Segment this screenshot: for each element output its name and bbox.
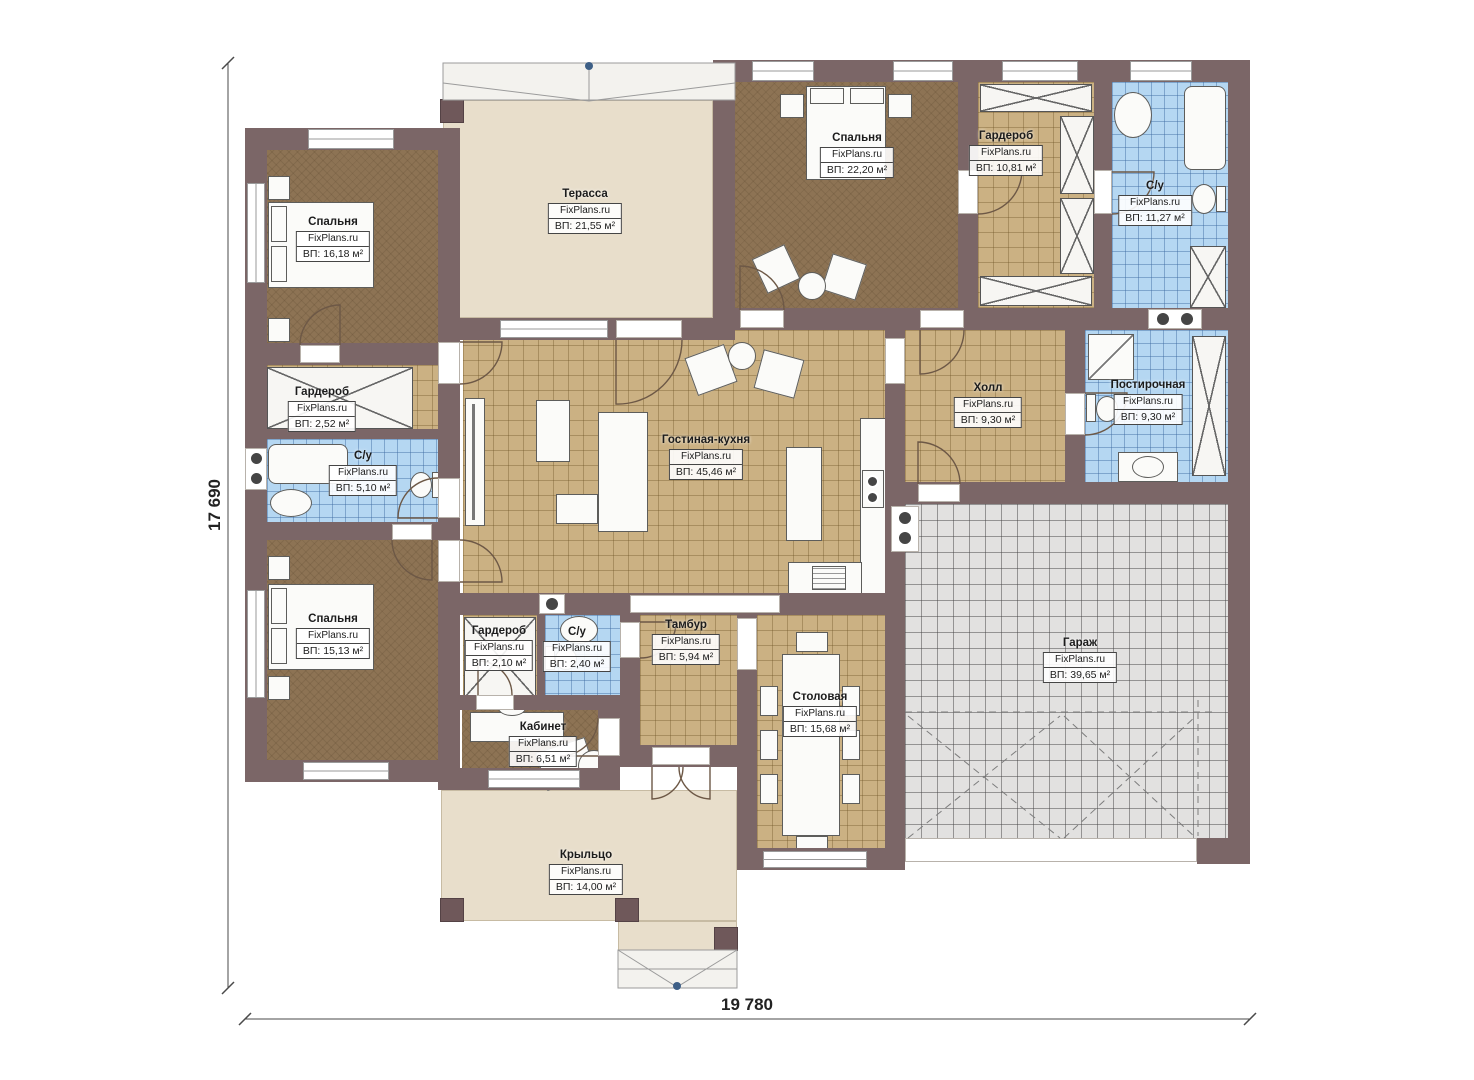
watermark: FixPlans.ru bbox=[550, 865, 622, 880]
pillow bbox=[810, 88, 844, 104]
chair bbox=[760, 686, 778, 716]
room-info-box: FixPlans.ru ВП: 21,55 м² bbox=[548, 203, 622, 234]
door-opening bbox=[392, 524, 432, 540]
room-info-box: FixPlans.ru ВП: 2,40 м² bbox=[543, 641, 611, 672]
door-opening bbox=[920, 310, 964, 328]
room-info-box: FixPlans.ru ВП: 5,10 м² bbox=[329, 465, 397, 496]
room-area: ВП: 15,68 м² bbox=[784, 722, 856, 736]
room-name: Гардероб bbox=[969, 130, 1043, 143]
wall bbox=[885, 504, 905, 870]
kitchen-island bbox=[786, 447, 822, 541]
door-opening bbox=[737, 618, 757, 670]
room-area: ВП: 5,94 м² bbox=[653, 650, 719, 664]
window bbox=[247, 183, 265, 283]
toilet bbox=[410, 472, 432, 498]
chair bbox=[760, 774, 778, 804]
room-label-hall: Холл FixPlans.ru ВП: 9,30 м² bbox=[954, 382, 1022, 428]
room-label-bathroom-2: С/у FixPlans.ru ВП: 5,10 м² bbox=[329, 450, 397, 496]
room-label-living-kitchen: Гостиная-кухня FixPlans.ru ВП: 45,46 м² bbox=[662, 434, 750, 480]
terrace-roof-outline bbox=[443, 62, 735, 101]
room-name: Крыльцо bbox=[549, 849, 623, 862]
window bbox=[500, 320, 608, 338]
room-area: ВП: 39,65 м² bbox=[1044, 668, 1116, 682]
room-area: ВП: 2,52 м² bbox=[289, 417, 355, 431]
watermark: FixPlans.ru bbox=[1119, 196, 1191, 211]
room-name: С/у bbox=[1118, 180, 1192, 193]
room-label-laundry: Постирочная FixPlans.ru ВП: 9,30 м² bbox=[1111, 379, 1186, 425]
door-opening bbox=[958, 170, 978, 214]
shower bbox=[1088, 334, 1134, 380]
room-label-bedroom-2: Спальня FixPlans.ru ВП: 22,20 м² bbox=[820, 132, 894, 178]
door-opening bbox=[885, 338, 905, 384]
room-name: Кабинет bbox=[509, 721, 577, 734]
sink bbox=[1114, 92, 1152, 138]
room-name: Гараж bbox=[1043, 637, 1117, 650]
room-label-bedroom-1: Спальня FixPlans.ru ВП: 16,18 м² bbox=[296, 216, 370, 262]
room-area: ВП: 5,10 м² bbox=[330, 481, 396, 495]
watermark: FixPlans.ru bbox=[297, 232, 369, 247]
room-info-box: FixPlans.ru ВП: 5,94 м² bbox=[652, 634, 720, 665]
wardrobe-cabinet bbox=[1190, 246, 1226, 308]
room-info-box: FixPlans.ru ВП: 10,81 м² bbox=[969, 145, 1043, 176]
dimension-height-label: 17 690 bbox=[205, 479, 225, 531]
watermark: FixPlans.ru bbox=[297, 629, 369, 644]
dimension-width-label: 19 780 bbox=[721, 995, 773, 1015]
room-area: ВП: 9,30 м² bbox=[1115, 410, 1181, 424]
watermark: FixPlans.ru bbox=[466, 641, 532, 656]
nightstand bbox=[268, 318, 290, 342]
chair bbox=[842, 774, 860, 804]
floor-plan: Спальня FixPlans.ru ВП: 16,18 м² Терасса… bbox=[0, 0, 1474, 1080]
wall bbox=[245, 343, 460, 365]
room-name: Столовая bbox=[783, 691, 857, 704]
watermark: FixPlans.ru bbox=[544, 642, 610, 657]
door-opening bbox=[1094, 170, 1112, 214]
room-name: С/у bbox=[543, 626, 611, 639]
room-area: ВП: 45,46 м² bbox=[670, 465, 742, 479]
coffee-table bbox=[536, 400, 570, 462]
round-table bbox=[728, 342, 756, 370]
room-label-bathroom-1: С/у FixPlans.ru ВП: 11,27 м² bbox=[1118, 180, 1192, 226]
watermark: FixPlans.ru bbox=[549, 204, 621, 219]
room-area: ВП: 9,30 м² bbox=[955, 413, 1021, 427]
boiler-dial bbox=[249, 471, 264, 486]
side-table bbox=[556, 494, 598, 524]
column bbox=[441, 899, 463, 921]
garage-gate-opening bbox=[905, 838, 1197, 862]
kitchen-sink bbox=[812, 566, 846, 590]
door-opening bbox=[740, 310, 784, 328]
column bbox=[715, 928, 737, 950]
room-name: С/у bbox=[329, 450, 397, 463]
wall bbox=[620, 593, 640, 767]
bathtub bbox=[1184, 86, 1226, 170]
roof-apex-marker bbox=[585, 62, 593, 70]
watermark: FixPlans.ru bbox=[1115, 395, 1181, 410]
room-info-box: FixPlans.ru ВП: 39,65 м² bbox=[1043, 652, 1117, 683]
watermark: FixPlans.ru bbox=[670, 450, 742, 465]
room-info-box: FixPlans.ru ВП: 16,18 м² bbox=[296, 231, 370, 262]
door-opening bbox=[918, 484, 960, 502]
room-label-bedroom-3: Спальня FixPlans.ru ВП: 15,13 м² bbox=[296, 613, 370, 659]
room-area: ВП: 11,27 м² bbox=[1119, 211, 1191, 225]
wardrobe-cabinet bbox=[980, 84, 1092, 112]
porch-steps bbox=[618, 950, 737, 990]
room-label-bathroom-3: С/у FixPlans.ru ВП: 2,40 м² bbox=[543, 626, 611, 672]
room-area: ВП: 22,20 м² bbox=[821, 163, 893, 177]
room-name: Терасса bbox=[548, 188, 622, 201]
room-name: Холл bbox=[954, 382, 1022, 395]
column bbox=[441, 100, 463, 122]
nightstand bbox=[780, 94, 804, 118]
watermark: FixPlans.ru bbox=[289, 402, 355, 417]
room-label-garage: Гараж FixPlans.ru ВП: 39,65 м² bbox=[1043, 637, 1117, 683]
room-label-study: Кабинет FixPlans.ru ВП: 6,51 м² bbox=[509, 721, 577, 767]
room-area: ВП: 2,10 м² bbox=[466, 656, 532, 670]
vent bbox=[544, 596, 560, 612]
window bbox=[763, 851, 867, 868]
steps-marker bbox=[673, 982, 681, 990]
window bbox=[893, 61, 953, 81]
chair bbox=[796, 632, 828, 652]
toilet bbox=[1192, 184, 1216, 214]
nightstand bbox=[268, 676, 290, 700]
room-name: Спальня bbox=[296, 613, 370, 626]
door-opening bbox=[438, 478, 460, 518]
room-name: Спальня bbox=[820, 132, 894, 145]
nightstand bbox=[268, 176, 290, 200]
tv bbox=[472, 404, 475, 520]
pillow bbox=[271, 206, 287, 242]
room-name: Спальня bbox=[296, 216, 370, 229]
door-opening bbox=[1065, 393, 1085, 435]
chair bbox=[760, 730, 778, 760]
pass-through-opening bbox=[630, 595, 780, 613]
room-area: ВП: 6,51 м² bbox=[510, 752, 576, 766]
room-area: ВП: 14,00 м² bbox=[550, 880, 622, 894]
window bbox=[1130, 61, 1192, 81]
room-info-box: FixPlans.ru ВП: 15,68 м² bbox=[783, 706, 857, 737]
room-info-box: FixPlans.ru ВП: 45,46 м² bbox=[669, 449, 743, 480]
burner bbox=[866, 491, 879, 504]
wall bbox=[1228, 60, 1250, 864]
room-info-box: FixPlans.ru ВП: 22,20 м² bbox=[820, 147, 894, 178]
watermark: FixPlans.ru bbox=[653, 635, 719, 650]
door-opening bbox=[598, 718, 620, 756]
sofa bbox=[598, 412, 648, 532]
burner bbox=[897, 530, 913, 546]
watermark: FixPlans.ru bbox=[821, 148, 893, 163]
wall bbox=[713, 60, 735, 330]
room-name: Гардероб bbox=[288, 386, 356, 399]
burner bbox=[866, 475, 879, 488]
watermark: FixPlans.ru bbox=[330, 466, 396, 481]
toilet-tank bbox=[1086, 394, 1096, 422]
pillow bbox=[271, 588, 287, 624]
room-info-box: FixPlans.ru ВП: 2,52 м² bbox=[288, 401, 356, 432]
boiler-dial bbox=[249, 451, 264, 466]
room-name: Постирочная bbox=[1111, 379, 1186, 392]
room-area: ВП: 2,40 м² bbox=[544, 657, 610, 671]
dryer bbox=[1179, 311, 1195, 327]
entrance-door-opening bbox=[652, 747, 710, 765]
wardrobe-cabinet bbox=[1060, 198, 1094, 274]
room-label-terrace: Терасса FixPlans.ru ВП: 21,55 м² bbox=[548, 188, 622, 234]
room-label-wardrobe-1: Гардероб FixPlans.ru ВП: 10,81 м² bbox=[969, 130, 1043, 176]
coffee-table bbox=[798, 272, 826, 300]
room-name: Гостиная-кухня bbox=[662, 434, 750, 447]
watermark: FixPlans.ru bbox=[1044, 653, 1116, 668]
watermark: FixPlans.ru bbox=[955, 398, 1021, 413]
sink bbox=[1132, 456, 1164, 478]
storage-cabinet bbox=[1192, 336, 1226, 476]
door-opening bbox=[300, 345, 340, 363]
door-opening bbox=[476, 695, 514, 710]
room-area: ВП: 10,81 м² bbox=[970, 161, 1042, 175]
wardrobe-cabinet bbox=[1060, 116, 1094, 194]
toilet-tank bbox=[1216, 186, 1226, 212]
pillow bbox=[850, 88, 884, 104]
door-opening bbox=[438, 342, 460, 384]
room-area: ВП: 16,18 м² bbox=[297, 247, 369, 261]
window bbox=[247, 590, 265, 698]
room-info-box: FixPlans.ru ВП: 15,13 м² bbox=[296, 628, 370, 659]
room-info-box: FixPlans.ru ВП: 9,30 м² bbox=[954, 397, 1022, 428]
window bbox=[308, 129, 394, 149]
dining-table bbox=[782, 654, 840, 836]
pillow bbox=[271, 246, 287, 282]
room-info-box: FixPlans.ru ВП: 11,27 м² bbox=[1118, 195, 1192, 226]
tv-stand bbox=[465, 398, 485, 526]
room-info-box: FixPlans.ru ВП: 6,51 м² bbox=[509, 736, 577, 767]
room-name: Тамбур bbox=[652, 619, 720, 632]
window bbox=[1002, 61, 1078, 81]
room-info-box: FixPlans.ru ВП: 2,10 м² bbox=[465, 640, 533, 671]
room-info-box: FixPlans.ru ВП: 14,00 м² bbox=[549, 864, 623, 895]
watermark: FixPlans.ru bbox=[510, 737, 576, 752]
room-info-box: FixPlans.ru ВП: 9,30 м² bbox=[1114, 394, 1182, 425]
window bbox=[303, 762, 389, 780]
nightstand bbox=[268, 556, 290, 580]
wall bbox=[438, 128, 460, 790]
pillow bbox=[271, 628, 287, 664]
room-label-wardrobe-2: Гардероб FixPlans.ru ВП: 2,52 м² bbox=[288, 386, 356, 432]
room-label-vestibule: Тамбур FixPlans.ru ВП: 5,94 м² bbox=[652, 619, 720, 665]
room-area: ВП: 15,13 м² bbox=[297, 644, 369, 658]
wall bbox=[1197, 838, 1250, 864]
room-label-porch: Крыльцо FixPlans.ru ВП: 14,00 м² bbox=[549, 849, 623, 895]
door-opening bbox=[438, 540, 460, 582]
room-area: ВП: 21,55 м² bbox=[549, 219, 621, 233]
watermark: FixPlans.ru bbox=[784, 707, 856, 722]
sink bbox=[270, 489, 312, 517]
column bbox=[616, 899, 638, 921]
wardrobe-cabinet bbox=[980, 276, 1092, 306]
burner bbox=[897, 510, 913, 526]
door-opening bbox=[616, 320, 682, 338]
window bbox=[752, 61, 814, 81]
room-name: Гардероб bbox=[465, 625, 533, 638]
washer bbox=[1155, 311, 1171, 327]
watermark: FixPlans.ru bbox=[970, 146, 1042, 161]
room-label-dining: Столовая FixPlans.ru ВП: 15,68 м² bbox=[783, 691, 857, 737]
room-label-wardrobe-3: Гардероб FixPlans.ru ВП: 2,10 м² bbox=[465, 625, 533, 671]
door-opening bbox=[620, 622, 640, 658]
nightstand bbox=[888, 94, 912, 118]
window bbox=[488, 770, 580, 788]
